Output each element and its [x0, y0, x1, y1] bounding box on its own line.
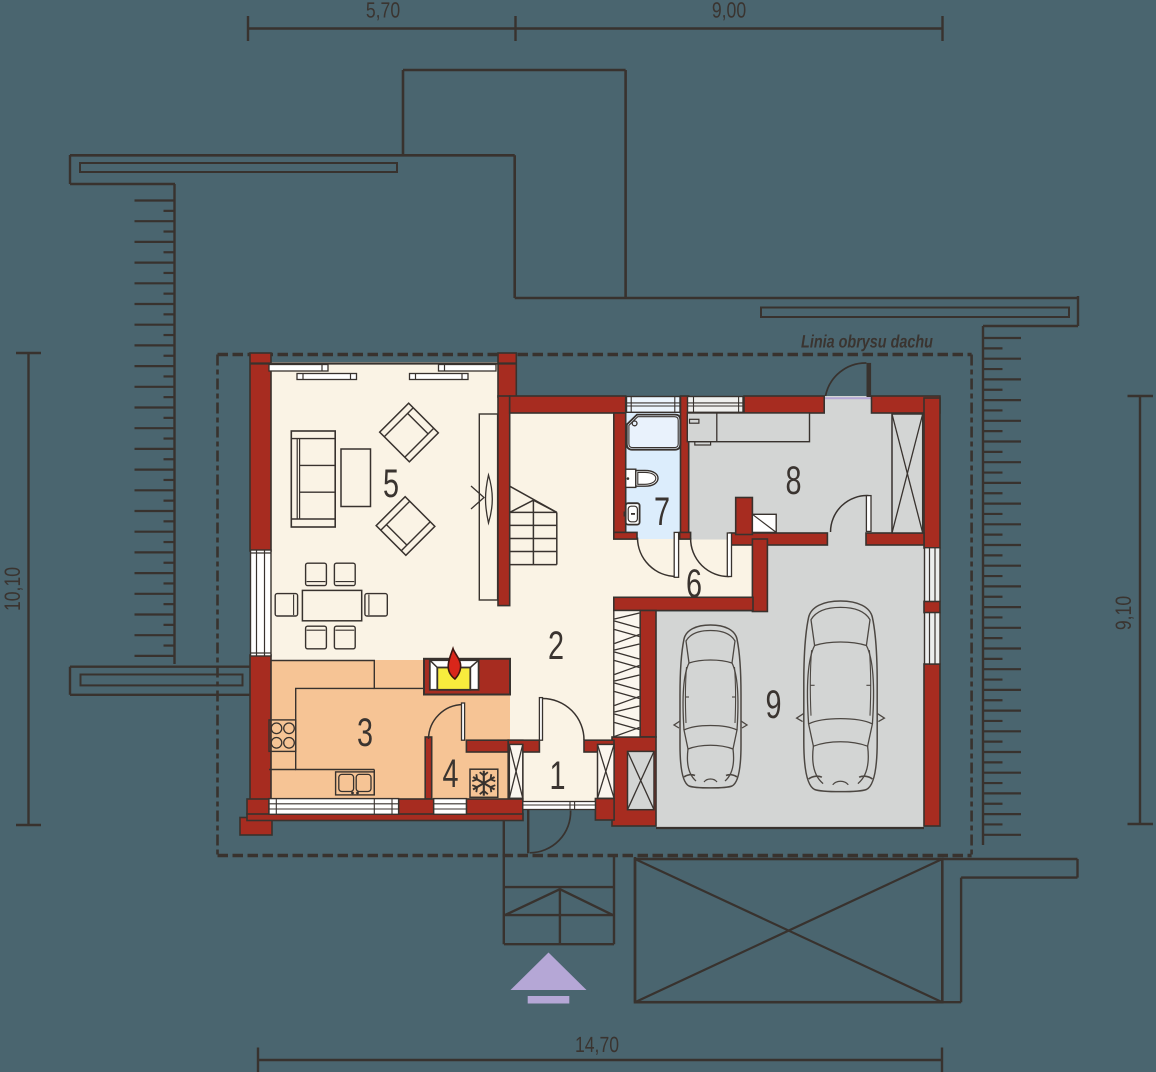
svg-text:9: 9: [765, 682, 781, 727]
svg-text:5,70: 5,70: [366, 0, 400, 23]
svg-text:8: 8: [785, 458, 801, 503]
svg-text:1: 1: [549, 753, 565, 798]
svg-text:2: 2: [548, 623, 564, 668]
svg-text:Linia obrysu dachu: Linia obrysu dachu: [801, 332, 933, 352]
svg-text:9,00: 9,00: [712, 0, 746, 23]
svg-text:9,10: 9,10: [1112, 596, 1136, 630]
svg-text:6: 6: [686, 561, 702, 606]
svg-text:4: 4: [442, 751, 458, 796]
svg-text:7: 7: [654, 489, 670, 534]
svg-text:10,10: 10,10: [1, 567, 25, 611]
svg-text:3: 3: [357, 710, 373, 755]
svg-text:14,70: 14,70: [575, 1033, 619, 1057]
svg-text:5: 5: [383, 461, 399, 506]
